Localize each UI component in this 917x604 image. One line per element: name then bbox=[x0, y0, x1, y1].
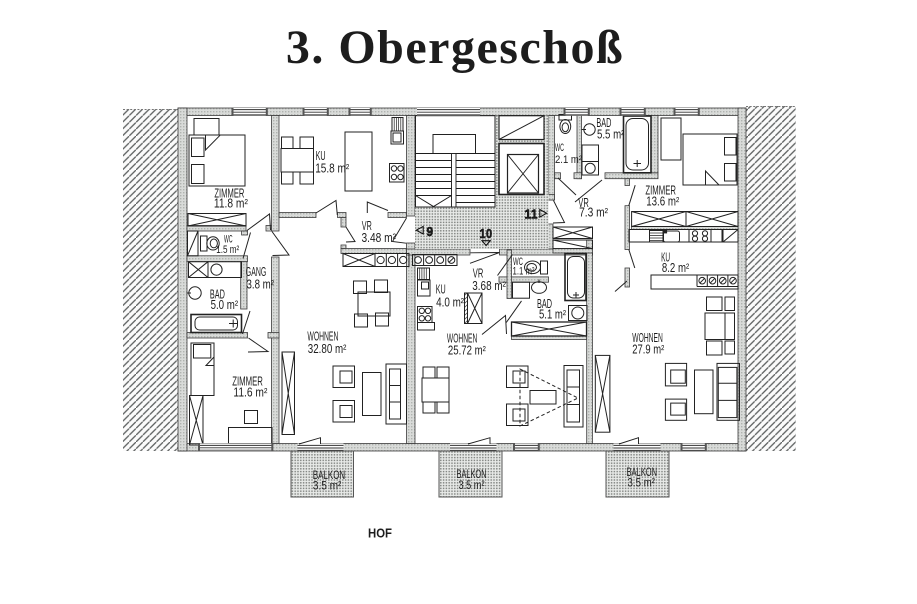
svg-text:11.8 m²: 11.8 m² bbox=[214, 197, 248, 211]
svg-text:11.6 m²: 11.6 m² bbox=[233, 386, 267, 400]
svg-text:15.8 m²: 15.8 m² bbox=[315, 162, 349, 176]
svg-text:32.80 m²: 32.80 m² bbox=[308, 342, 347, 356]
svg-text:3.5 m²: 3.5 m² bbox=[628, 476, 656, 490]
svg-text:3.8 m²: 3.8 m² bbox=[247, 278, 275, 292]
svg-text:WC: WC bbox=[555, 142, 564, 154]
svg-text:3.5 m²: 3.5 m² bbox=[313, 479, 342, 493]
svg-text:3. Obergeschoß: 3. Obergeschoß bbox=[286, 21, 624, 74]
svg-text:3.48 m²: 3.48 m² bbox=[362, 231, 397, 245]
svg-text:HOF: HOF bbox=[368, 526, 392, 541]
svg-text:3.68 m²: 3.68 m² bbox=[472, 279, 506, 293]
svg-text:8.2 m²: 8.2 m² bbox=[662, 261, 689, 275]
svg-text:1.1 m²: 1.1 m² bbox=[513, 266, 535, 278]
svg-text:5.5 m²: 5.5 m² bbox=[597, 128, 624, 142]
svg-text:2.1 m²: 2.1 m² bbox=[555, 154, 582, 166]
svg-text:9: 9 bbox=[427, 224, 434, 239]
svg-text:25.72 m²: 25.72 m² bbox=[448, 344, 486, 358]
svg-text:13.6 m²: 13.6 m² bbox=[646, 195, 679, 209]
svg-text:4.0 m²: 4.0 m² bbox=[436, 296, 464, 310]
svg-text:11: 11 bbox=[525, 206, 539, 221]
svg-text:3.5 m²: 3.5 m² bbox=[459, 478, 485, 492]
svg-text:10: 10 bbox=[480, 226, 493, 241]
svg-text:1.5 m²: 1.5 m² bbox=[216, 244, 239, 256]
svg-text:KU: KU bbox=[436, 283, 446, 297]
svg-text:27.9 m²: 27.9 m² bbox=[632, 343, 664, 357]
svg-text:7.3 m²: 7.3 m² bbox=[579, 206, 608, 220]
svg-text:5.0 m²: 5.0 m² bbox=[211, 298, 239, 312]
svg-text:5.1 m²: 5.1 m² bbox=[539, 308, 566, 322]
